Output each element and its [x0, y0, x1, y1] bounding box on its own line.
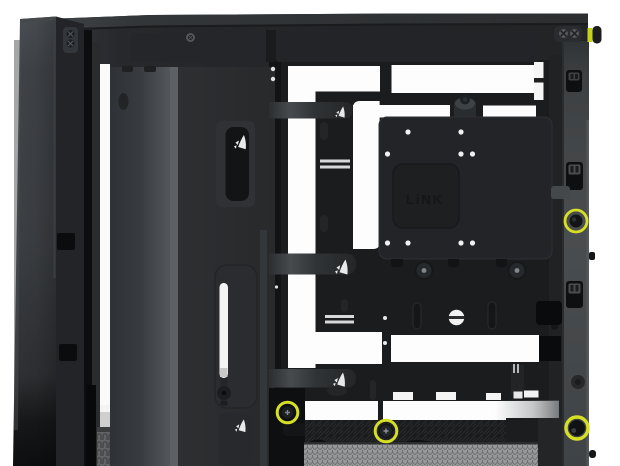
- svg-text:LiNK: LiNK: [406, 192, 444, 207]
